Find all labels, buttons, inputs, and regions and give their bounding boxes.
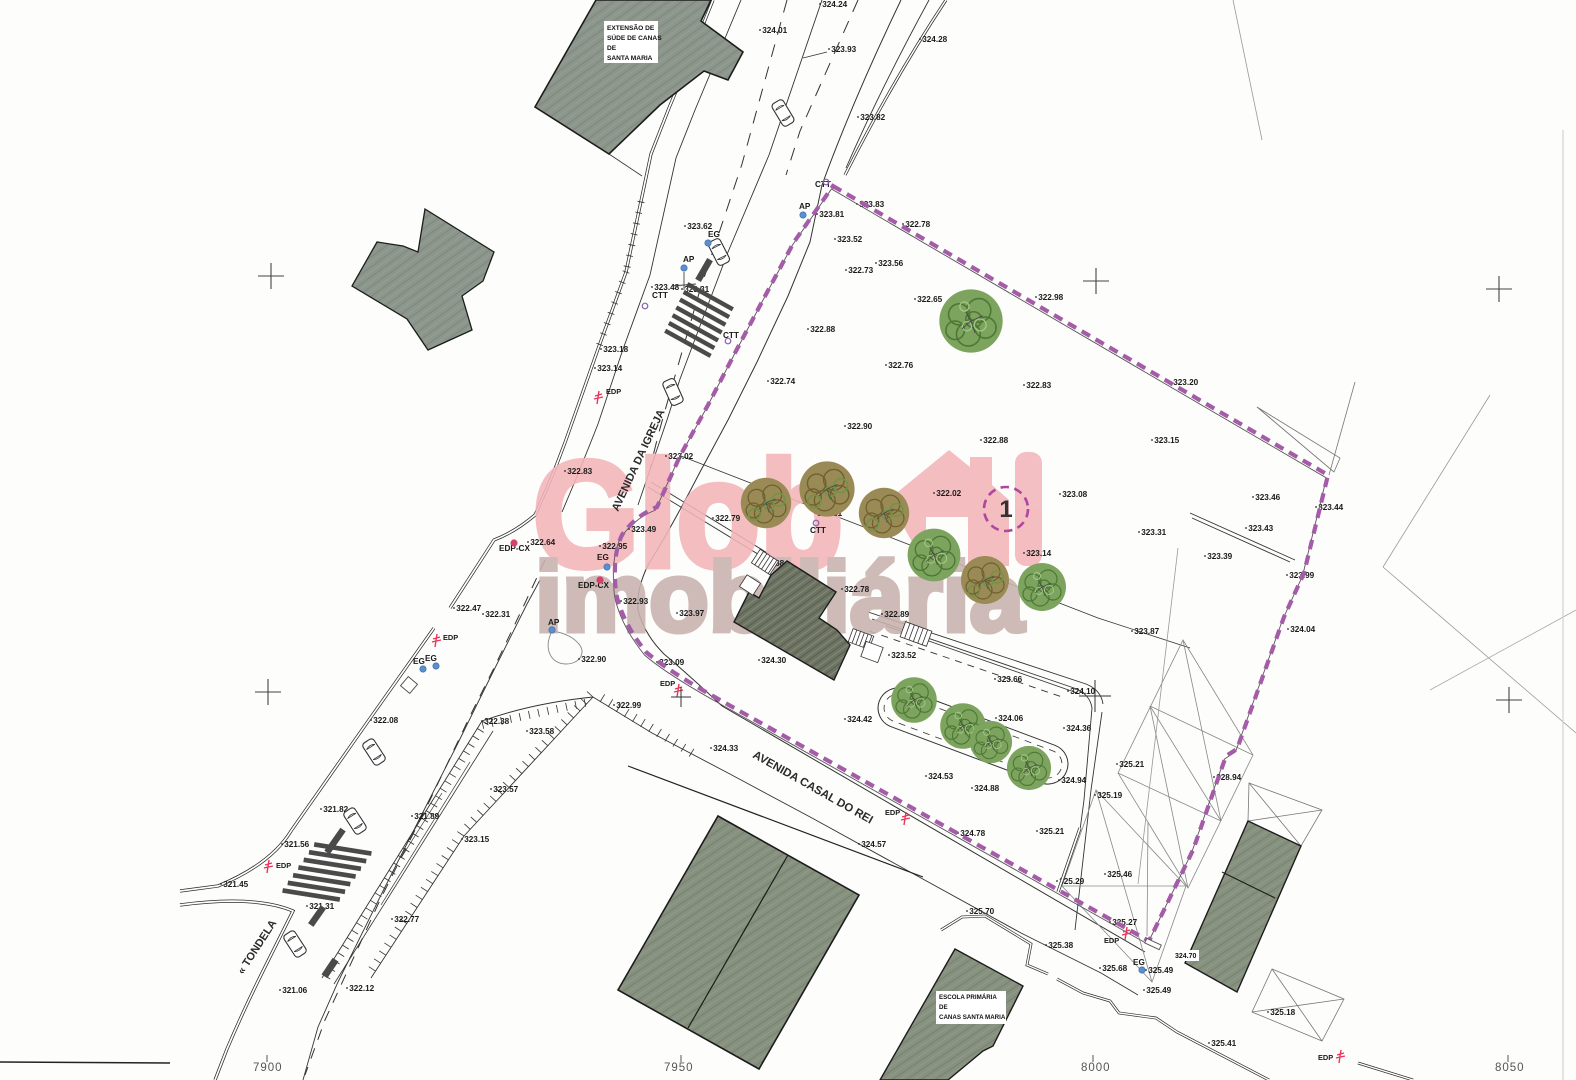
svg-text:323.56: 323.56 bbox=[878, 259, 903, 268]
svg-text:322.02: 322.02 bbox=[936, 489, 961, 498]
svg-text:323.39: 323.39 bbox=[1207, 552, 1232, 561]
svg-text:325.21: 325.21 bbox=[1039, 827, 1064, 836]
svg-text:324.10: 324.10 bbox=[1070, 687, 1095, 696]
svg-text:325.41: 325.41 bbox=[1211, 1039, 1236, 1048]
svg-text:CTT: CTT bbox=[723, 331, 739, 340]
svg-text:321.45: 321.45 bbox=[223, 880, 248, 889]
svg-text:SANTA MARIA: SANTA MARIA bbox=[607, 55, 653, 62]
svg-text:324.57: 324.57 bbox=[861, 840, 886, 849]
svg-text:325.38: 325.38 bbox=[1048, 941, 1073, 950]
svg-text:322.65: 322.65 bbox=[917, 295, 942, 304]
svg-text:323.52: 323.52 bbox=[891, 651, 916, 660]
svg-text:322.98: 322.98 bbox=[1038, 293, 1063, 302]
svg-text:EG: EG bbox=[425, 654, 437, 663]
svg-text:324.42: 324.42 bbox=[847, 715, 872, 724]
svg-text:324.94: 324.94 bbox=[1061, 776, 1086, 785]
svg-text:321.89: 321.89 bbox=[414, 812, 439, 821]
svg-text:323.18: 323.18 bbox=[603, 345, 628, 354]
svg-text:322.78: 322.78 bbox=[905, 220, 930, 229]
svg-text:324.04: 324.04 bbox=[1290, 625, 1315, 634]
svg-text:322.08: 322.08 bbox=[373, 716, 398, 725]
svg-text:322.74: 322.74 bbox=[770, 377, 795, 386]
svg-text:EG: EG bbox=[597, 553, 609, 562]
svg-text:324.88: 324.88 bbox=[974, 784, 999, 793]
svg-text:325.49: 325.49 bbox=[1146, 986, 1171, 995]
svg-text:322.38: 322.38 bbox=[484, 717, 509, 726]
svg-text:322.78: 322.78 bbox=[844, 585, 869, 594]
svg-text:322.31: 322.31 bbox=[485, 610, 510, 619]
svg-text:324.28: 324.28 bbox=[922, 35, 947, 44]
svg-text:322.88: 322.88 bbox=[983, 436, 1008, 445]
svg-text:322.73: 322.73 bbox=[848, 266, 873, 275]
svg-text:321.56: 321.56 bbox=[284, 840, 309, 849]
svg-text:323.43: 323.43 bbox=[1248, 524, 1273, 533]
svg-text:323.08: 323.08 bbox=[1062, 490, 1087, 499]
svg-text:EDP: EDP bbox=[885, 808, 900, 817]
svg-text:325.21: 325.21 bbox=[1119, 760, 1144, 769]
svg-text:322.90: 322.90 bbox=[847, 422, 872, 431]
svg-text:324.70: 324.70 bbox=[1175, 953, 1197, 960]
svg-text:324.33: 324.33 bbox=[713, 744, 738, 753]
svg-text:322.83: 322.83 bbox=[1026, 381, 1051, 390]
svg-text:8050: 8050 bbox=[1495, 1062, 1525, 1074]
svg-text:325.70: 325.70 bbox=[969, 907, 994, 916]
svg-text:EDP-CX: EDP-CX bbox=[578, 581, 609, 590]
svg-text:EDP: EDP bbox=[1104, 936, 1119, 945]
svg-text:324.06: 324.06 bbox=[998, 714, 1023, 723]
svg-text:325.46: 325.46 bbox=[1107, 870, 1132, 879]
svg-text:323.15: 323.15 bbox=[464, 835, 489, 844]
svg-text:EG: EG bbox=[413, 657, 425, 666]
svg-text:324.01: 324.01 bbox=[762, 26, 787, 35]
svg-text:SÚDE DE CANAS: SÚDE DE CANAS bbox=[607, 33, 662, 42]
svg-text:7900: 7900 bbox=[253, 1062, 283, 1074]
svg-text:323.82: 323.82 bbox=[860, 113, 885, 122]
svg-text:DE: DE bbox=[939, 1004, 948, 1011]
svg-text:EG: EG bbox=[708, 230, 720, 239]
svg-text:EDP: EDP bbox=[1318, 1053, 1333, 1062]
svg-text:323.14: 323.14 bbox=[597, 364, 622, 373]
svg-text:323.46: 323.46 bbox=[1255, 493, 1280, 502]
svg-text:1: 1 bbox=[999, 496, 1012, 523]
svg-text:323.49: 323.49 bbox=[631, 525, 656, 534]
svg-text:322.79: 322.79 bbox=[715, 514, 740, 523]
svg-text:323.15: 323.15 bbox=[1154, 436, 1179, 445]
svg-text:EDP: EDP bbox=[660, 679, 675, 688]
svg-text:322.12: 322.12 bbox=[349, 984, 374, 993]
svg-text:323.02: 323.02 bbox=[668, 452, 693, 461]
svg-text:322.83: 322.83 bbox=[567, 467, 592, 476]
svg-text:323.44: 323.44 bbox=[1318, 503, 1343, 512]
svg-text:EDP: EDP bbox=[443, 633, 458, 642]
svg-text:CTT: CTT bbox=[652, 291, 668, 300]
svg-text:325.18: 325.18 bbox=[1270, 1008, 1295, 1017]
svg-text:322.76: 322.76 bbox=[888, 361, 913, 370]
svg-text:323.81: 323.81 bbox=[819, 210, 844, 219]
svg-text:323.20: 323.20 bbox=[1173, 378, 1198, 387]
svg-text:323.66: 323.66 bbox=[997, 675, 1022, 684]
svg-text:321.06: 321.06 bbox=[282, 986, 307, 995]
svg-text:323.58: 323.58 bbox=[529, 727, 554, 736]
svg-text:EDP: EDP bbox=[606, 387, 621, 396]
svg-text:323.87: 323.87 bbox=[1134, 627, 1159, 636]
svg-text:EXTENSÃO DE: EXTENSÃO DE bbox=[607, 23, 655, 32]
svg-text:AP: AP bbox=[548, 618, 560, 627]
svg-text:322.90: 322.90 bbox=[581, 655, 606, 664]
svg-text:324.24: 324.24 bbox=[822, 0, 847, 9]
svg-text:323.57: 323.57 bbox=[493, 785, 518, 794]
svg-text:323.14: 323.14 bbox=[1026, 549, 1051, 558]
svg-text:8000: 8000 bbox=[1081, 1062, 1111, 1074]
svg-text:322.64: 322.64 bbox=[530, 538, 555, 547]
svg-text:322.47: 322.47 bbox=[456, 604, 481, 613]
svg-text:DE: DE bbox=[607, 45, 617, 52]
svg-text:CTT: CTT bbox=[810, 526, 826, 535]
svg-text:7950: 7950 bbox=[664, 1062, 694, 1074]
svg-text:EG: EG bbox=[1133, 958, 1145, 967]
svg-text:323.52: 323.52 bbox=[837, 235, 862, 244]
svg-text:ESCOLA PRIMÁRIA: ESCOLA PRIMÁRIA bbox=[939, 994, 997, 1001]
svg-text:323.31: 323.31 bbox=[1141, 528, 1166, 537]
svg-text:323.97: 323.97 bbox=[679, 609, 704, 618]
svg-text:325.49: 325.49 bbox=[1148, 966, 1173, 975]
svg-text:325.19: 325.19 bbox=[1097, 791, 1122, 800]
svg-text:EDP: EDP bbox=[276, 861, 291, 870]
svg-text:AP: AP bbox=[799, 202, 811, 211]
svg-text:322.88: 322.88 bbox=[810, 325, 835, 334]
svg-text:CANAS SANTA MARIA: CANAS SANTA MARIA bbox=[939, 1014, 1006, 1021]
svg-text:324.53: 324.53 bbox=[928, 772, 953, 781]
svg-text:323.93: 323.93 bbox=[831, 45, 856, 54]
svg-text:324.30: 324.30 bbox=[761, 656, 786, 665]
svg-text:322.89: 322.89 bbox=[884, 610, 909, 619]
svg-text:322.99: 322.99 bbox=[616, 701, 641, 710]
svg-text:325.68: 325.68 bbox=[1102, 964, 1127, 973]
svg-text:322.93: 322.93 bbox=[623, 597, 648, 606]
svg-text:324.36: 324.36 bbox=[1066, 724, 1091, 733]
svg-text:322.77: 322.77 bbox=[394, 915, 419, 924]
svg-text:AP: AP bbox=[683, 255, 695, 264]
